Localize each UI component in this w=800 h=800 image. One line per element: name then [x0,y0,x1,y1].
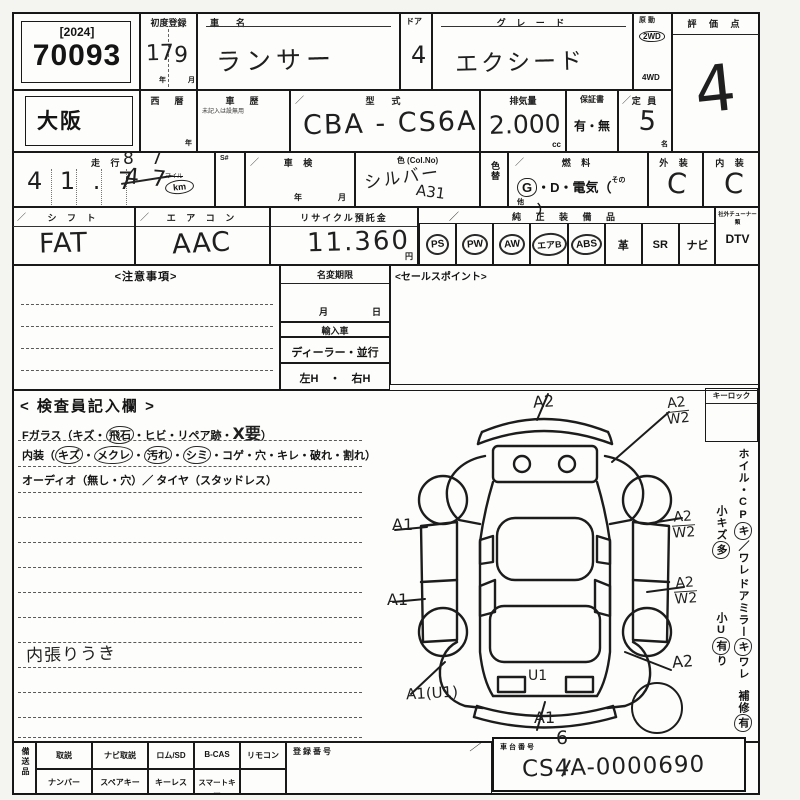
accessory-number-plate: ナンバー [37,777,91,788]
prefecture-value: 大阪 [37,105,83,135]
notes-label: <注意事項> [13,268,279,284]
score-label: 評 価 点 [673,17,759,35]
model-code-label: 型 式 [291,94,479,107]
recycle-fee-cell: リサイクル預託金 11.360 円 [270,207,418,265]
equip-aw: AW [493,223,530,266]
chassis-number-value: CS4A-0000690 [522,752,706,783]
damage-note-rear-bumper: A1 [534,708,555,727]
shareki-cell: 車 歴 未記入は設無用 [197,90,290,152]
aircon-label: エ ア コ ン [136,211,269,227]
car-name-value: ランサー [216,39,337,78]
equip-pw: PW [456,223,493,266]
chassis-crossed-digit: 4 [554,755,570,781]
sales-point-cell: <セールスポイント> [390,265,760,385]
circled-mekure: メクレ [94,445,134,464]
color-change-cell: 色替 [480,152,508,207]
first-registration-cell: 初度登録 17 年 9 月 [140,12,197,90]
serial-label: S# [220,155,229,162]
margin-note-repair: 補修有 [734,690,752,732]
drive-cell: 原動 2WD 4WD [633,12,672,90]
km-unit: km [164,179,194,196]
damage-note-left-front-door: A1 [392,515,413,534]
chassis-correction-digit: 6 [556,727,568,749]
mileage-cell: 走 行 8 7 4 1 . 7 4 7 マイル km [12,152,215,207]
capacity-cell: ／ 定 員 5 名 [618,90,672,152]
equip-ps: PS [419,223,456,266]
inspector-title: < 検査員記入欄 > [20,395,156,416]
shaken-year-unit: 年 [294,192,302,203]
accessory-empty-cell [240,769,286,795]
mile-unit: マイル [165,171,183,180]
handle-cell: 左H ・ 右H [280,363,390,390]
damage-note-trunk: U1 [528,668,547,684]
color-code-value: A31 [415,181,447,203]
model-code-cell: ／ 型 式 CBA - CS6A [290,90,480,152]
auction-sheet-scan: { "misc":{"check":"／","dot":"・"}, "heade… [0,0,800,800]
shaken-cell: ／ 車 検 年 月 [245,152,355,207]
accessory-smart-key: スマートキー [195,777,239,799]
month-unit: 月 [188,75,195,85]
seireki-label: 西 暦 [141,94,196,107]
tuner-cell: 社外チューナー類 DTV [715,207,760,265]
drive-label: 原動 [639,15,657,25]
equip-navi: ナビ [679,223,716,266]
margin-note-small-dent: 小U有り [712,612,730,667]
sales-point-label: <セールスポイント> [395,268,487,283]
lot-number: 70093 [13,39,141,73]
displacement-label: 排気量 [481,94,565,107]
serial-cell: S# [215,152,245,207]
displacement-cell: 排気量 2.000 cc [480,90,566,152]
drive-4wd: 4WD [642,73,660,82]
accessory-bcas: B-CAS [195,750,239,759]
damage-note-right-rear-door: A2W2 [673,575,698,607]
recycle-fee-label: リサイクル預託金 [271,211,417,227]
car-name-label: 車 名 [210,16,249,29]
fuel-cell: ／ 燃 料 G・D・電気（その他 ） [508,152,648,207]
interior-grade-cell: 内 装 C [703,152,760,207]
grade-cell: グ レ ー ド エクシード [432,12,633,90]
damage-note-left-rear-door: A1 [387,590,408,609]
displacement-unit: cc [552,140,561,149]
accessories-side-label: 備送品 [20,747,31,777]
capacity-unit: 名 [661,139,668,149]
shift-label: シ フ ト [13,211,134,227]
first-reg-month-value: 9 [174,43,189,68]
handle-label: 左H ・ 右H [281,370,389,386]
margin-note-wheel-cap: ホイル・CPキ／ワレ [734,448,752,576]
grade-label: グ レ ー ド [433,16,632,29]
damage-note-front: A2 [532,391,554,411]
shaken-month-unit: 月 [338,192,346,203]
warranty-label: 保証書 [567,94,617,105]
exterior-grade-value: C [665,166,688,201]
import-label: 輸入車 [281,324,389,337]
accessory-remote: リモコン [241,750,285,761]
circled-present: 有 [734,714,753,733]
shift-value: FAT [39,227,89,259]
name-change-month: 月 [319,305,328,318]
check-mark: ／ [469,738,482,755]
circled-kizu: キ [734,522,753,541]
margin-note-small-scratches: 小キズ多 [712,505,730,559]
inspector-line-interior: 内装（キズ・メクレ・汚れ・シミ・コゲ・穴・キレ・破れ・割れ） [22,446,376,464]
fuel-rest: ・D・電気（ [537,180,611,195]
auction-year-tag: [2024] [13,25,141,39]
chassis-number-label: 車台番号 [500,742,536,752]
equipment-cell: ／ 純 正 装 備 品 PS PW AW エアB ABS 革 SR ナビ [418,207,715,265]
name-change-day: 日 [372,305,381,318]
circled-kizu: キズ [55,446,84,465]
score-cell: 評 価 点 4 [672,12,760,152]
keylock-label: キーロック [706,390,757,404]
equipment-label: 純 正 装 備 品 [419,210,714,223]
displacement-value: 2.000 [489,109,561,140]
tuner-label: 社外チューナー類 [716,210,759,226]
accessory-rom-sd: ロム/SD [149,750,193,761]
seireki-cell: 西 暦 年 [140,90,197,152]
color-cell: 色 (Col.No) シルバー A31 [355,152,480,207]
warranty-cell: 保証書 有・無 [566,90,618,152]
grade-value: エクシード [455,41,586,78]
registration-number-cell: 登録番号 ／ [286,742,492,795]
circled-present: 有 [712,637,731,656]
drive-2wd: 2WD [639,31,665,42]
hand-note-trim-lifting: 内張りうき [26,639,117,666]
prefecture-cell: 大阪 [12,90,140,152]
door-cell: ドア 4 [400,12,432,90]
fuel-gasoline: G [517,178,537,197]
equip-sunroof: SR [642,223,679,266]
recycle-fee-value: 11.360 [307,226,411,259]
color-change-label: 色替 [489,161,502,181]
notes-section: <注意事項> [12,265,280,390]
seireki-unit: 年 [185,138,192,148]
inspector-line-audio-tire: オーディオ（無し・穴）／ タイヤ（スタッドレス） [22,472,277,488]
warranty-value: 有・無 [567,117,617,134]
dealer-cell: ディーラー・並行 [280,337,390,363]
name-change-cell: 名変期限 月 日 [280,265,390,322]
circled-shimi: シミ [183,446,212,465]
door-label: ドア [406,16,422,27]
car-name-cell: 車 名 ランサー [197,12,400,90]
name-change-label: 名変期限 [281,268,389,284]
interior-grade-value: C [723,167,744,201]
mileage-crossed-digits: 4 7 [124,164,170,193]
exterior-grade-cell: 外 装 C [648,152,703,207]
damage-note-left-rear-fender: A1(U1) [406,683,459,704]
circled-yogore: 汚れ [144,446,173,465]
recycle-fee-unit: 円 [405,251,413,262]
equip-airbag: エアB [530,223,567,266]
equip-leather: 革 [605,223,642,266]
circled-kizu: キ [734,638,753,657]
first-reg-year-value: 17 [146,41,175,67]
accessory-navi-manual: ナビ取説 [93,750,147,761]
accessory-keyless: キーレス [149,777,193,788]
equip-abs: ABS [568,223,605,266]
accessory-manual: 取説 [37,750,91,761]
aircon-value: AAC [171,226,232,260]
damage-note-right-rear-fender: A2 [671,651,694,672]
tuner-value: DTV [716,232,759,246]
aircon-cell: ／ エ ア コ ン AAC [135,207,270,265]
circled-many: 多 [712,541,731,560]
first-registration-label: 初度登録 [141,16,196,29]
shaken-label: 車 検 [246,156,354,169]
accessory-spare-key: スペアキー [93,777,147,788]
door-value: 4 [411,41,426,69]
import-header-cell: 輸入車 [280,322,390,337]
capacity-value: 5 [638,105,657,137]
damage-note-right-front-door: A2W2 [671,509,696,541]
accessories-side-label-cell: 備送品 [12,742,36,795]
lot-cell: [2024] 70093 [12,12,140,90]
shift-cell: ／ シ フ ト FAT [12,207,135,265]
fuel-label: 燃 料 [509,156,647,169]
shareki-note: 未記入は設無用 [202,106,244,115]
damage-note-front-right: A2W2 [664,395,690,427]
model-code-value: CBA - CS6A [303,106,478,142]
margin-note-door-mirror: ドアミラーキワレ [734,578,752,680]
chassis-number-cell: 車台番号 6 CS4A-0000690 [492,737,746,792]
year-unit: 年 [159,75,166,85]
score-value: 4 [691,51,739,129]
circled-stone-chip: 飛石 [105,426,134,445]
dealer-label: ディーラー・並行 [281,344,389,360]
keylock-cell: キーロック [705,388,758,442]
mileage-value: 4 1 . 7 [27,167,138,195]
registration-number-label: 登録番号 [293,746,333,757]
